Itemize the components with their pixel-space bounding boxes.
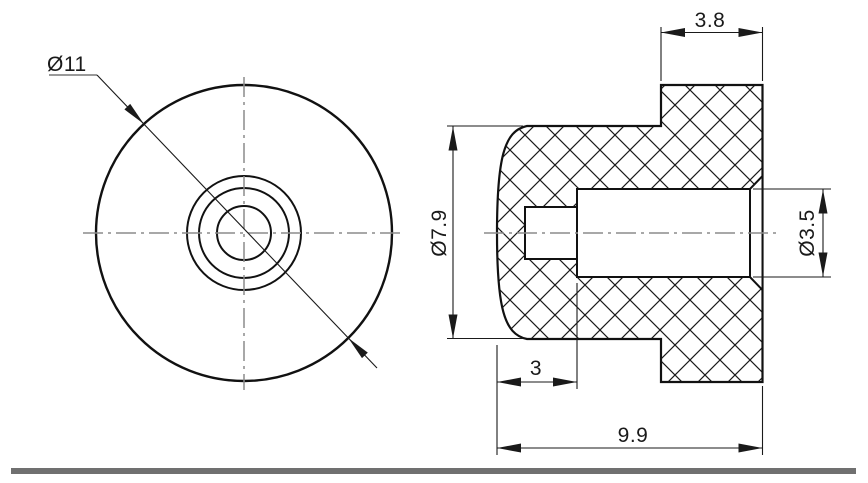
dim-label-bore-diameter: Ø3.5 xyxy=(796,209,819,257)
technical-drawing: Ø11 3.8 Ø7.9 xyxy=(0,0,868,483)
bottom-separator-bar xyxy=(11,468,856,474)
section-view: 3.8 Ø7.9 Ø3.5 3 xyxy=(428,9,831,455)
dim-label-overall-length: 9.9 xyxy=(618,424,649,447)
dimension-front-diameter: Ø11 xyxy=(47,53,377,368)
dimension-flange-width: 3.8 xyxy=(661,9,763,81)
dimension-overall-length: 9.9 xyxy=(497,386,763,455)
dim-label-counterbore-depth: 3 xyxy=(530,357,542,380)
front-view: Ø11 xyxy=(47,53,405,390)
leader-arrow-lower xyxy=(348,338,368,358)
dim-label-body-diameter: Ø7.9 xyxy=(428,209,451,257)
dim-label-flange-width: 3.8 xyxy=(695,9,726,32)
leader-arrow-upper xyxy=(124,104,143,124)
dim-label-front-diameter: Ø11 xyxy=(47,53,87,76)
drawing-canvas: Ø11 3.8 Ø7.9 xyxy=(0,0,868,483)
